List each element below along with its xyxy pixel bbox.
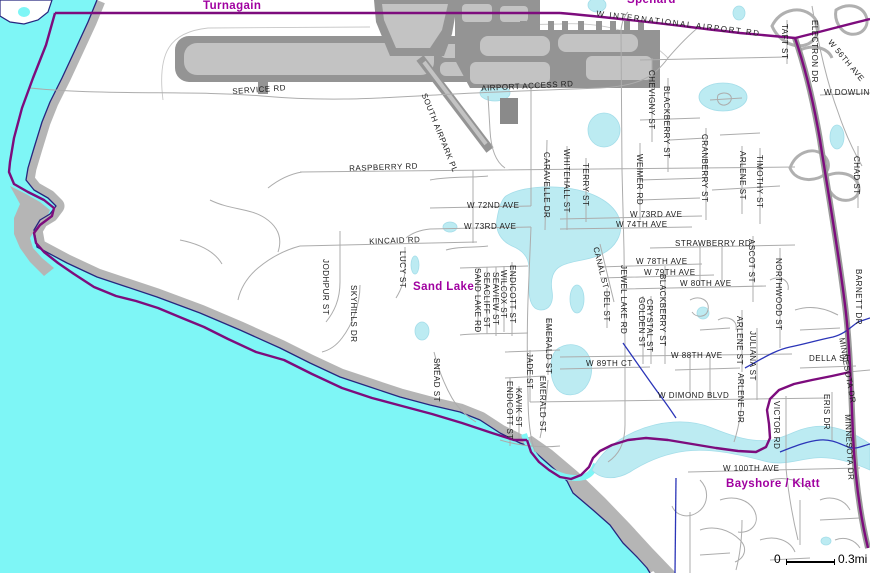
map-viewport[interactable]: SERVICE RDAIRPORT ACCESS RDW INTERNATION… <box>0 0 870 573</box>
scale-bar-line <box>786 561 835 563</box>
terminal-gates <box>520 21 644 30</box>
scale-bar: 0 0.3mi <box>770 550 870 570</box>
scale-zero-label: 0 <box>774 552 781 566</box>
airport-building <box>500 98 518 124</box>
jewel-lake-water <box>551 345 592 395</box>
scale-distance-label: 0.3mi <box>838 552 867 566</box>
map-graphics <box>0 0 870 573</box>
